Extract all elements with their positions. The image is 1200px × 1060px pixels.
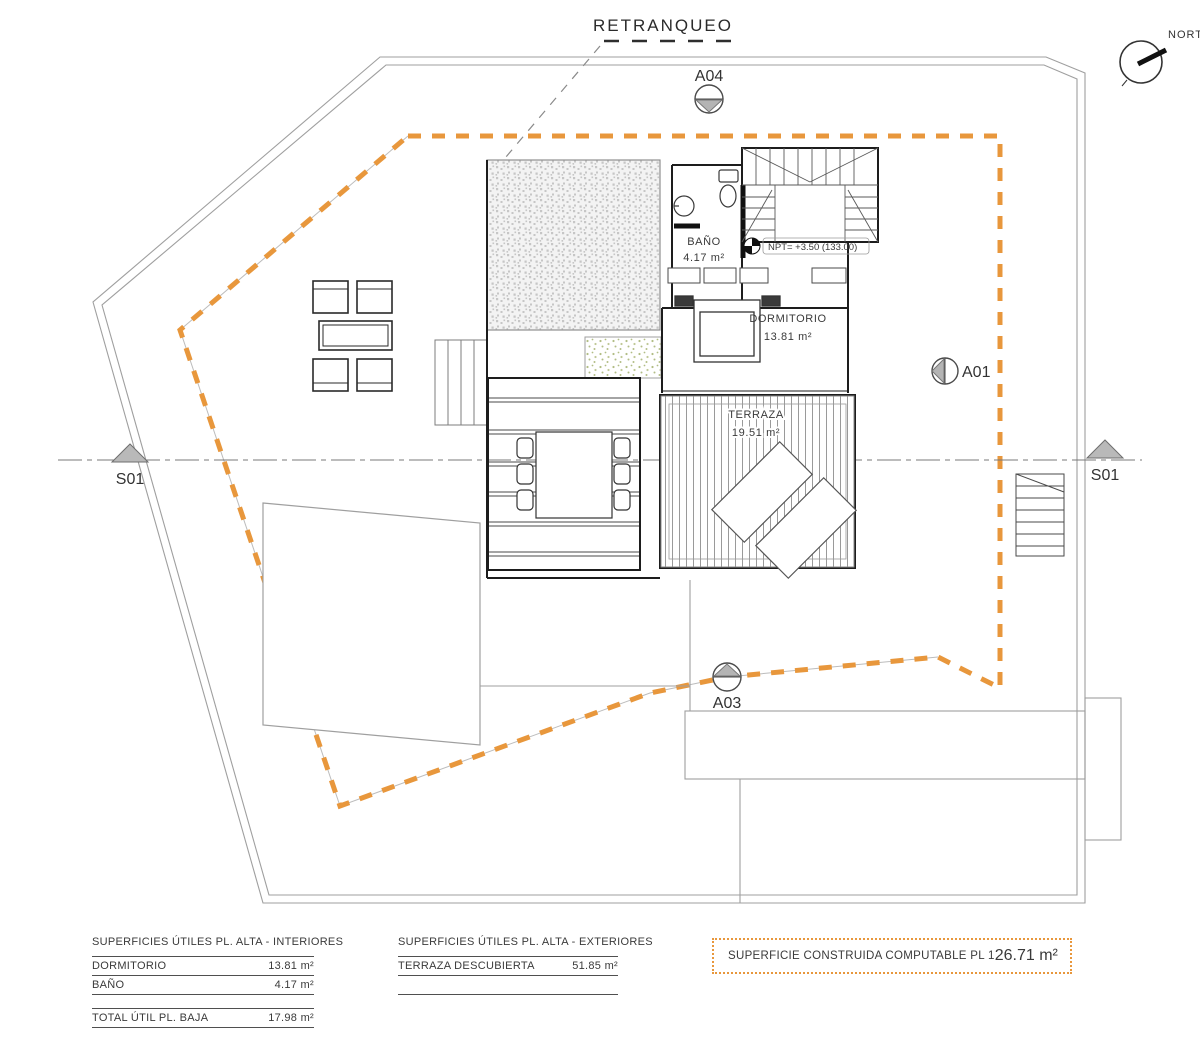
row-value: 13.81 m² <box>268 960 314 972</box>
wardrobes <box>668 268 846 283</box>
total-label: TOTAL ÚTIL PL. BAJA <box>92 1012 208 1024</box>
marker-a01: A01 <box>932 358 991 384</box>
outdoor-furniture <box>313 281 392 391</box>
lower-level-pool-outline <box>263 503 480 745</box>
bathroom-fixtures <box>674 170 738 216</box>
row-label: DORMITORIO <box>92 960 166 972</box>
north-compass: NORTE <box>1120 29 1200 86</box>
table-interiors-title: SUPERFICIES ÚTILES PL. ALTA - INTERIORES <box>92 936 314 956</box>
bano-area: 4.17 m² <box>683 252 725 264</box>
table-exteriors-title: SUPERFICIES ÚTILES PL. ALTA - EXTERIORES <box>398 936 618 956</box>
section-marker-s01-right: S01 <box>1087 440 1123 484</box>
computable-label: SUPERFICIE CONSTRUIDA COMPUTABLE PL 1 <box>728 950 995 962</box>
room-label-dormitorio: DORMITORIO 13.81 m² <box>749 313 826 343</box>
dormitorio-name: DORMITORIO <box>749 313 826 325</box>
section-marker-s01-left: S01 <box>112 444 148 488</box>
lower-level-outlines <box>480 580 1121 903</box>
planter <box>585 337 661 378</box>
a04-label: A04 <box>695 68 724 85</box>
a03-label: A03 <box>713 695 742 712</box>
table-row: TERRAZA DESCUBIERTA 51.85 m² <box>398 956 618 976</box>
toilet-tank <box>719 170 738 182</box>
table-row: BAÑO 4.17 m² <box>92 976 314 995</box>
terraza-name: TERRAZA <box>728 409 784 421</box>
table-empty-row <box>398 976 618 995</box>
level-marker: NPT= +3.50 (133.00) <box>744 238 869 254</box>
table-total-row: TOTAL ÚTIL PL. BAJA 17.98 m² <box>92 1008 314 1028</box>
setback-label: RETRANQUEO <box>593 16 733 35</box>
staircase <box>742 148 878 242</box>
dining-set-below <box>517 432 630 518</box>
s01-left-label: S01 <box>116 471 145 488</box>
exterior-stair <box>1016 474 1064 556</box>
s01-right-label: S01 <box>1091 467 1120 484</box>
total-value: 17.98 m² <box>268 1012 314 1024</box>
marker-a03: A03 <box>713 663 742 712</box>
gravel-roof-area <box>487 160 660 330</box>
table-gap <box>92 995 314 1008</box>
table-row: DORMITORIO 13.81 m² <box>92 956 314 976</box>
row-value: 51.85 m² <box>572 960 618 972</box>
table-exteriors: SUPERFICIES ÚTILES PL. ALTA - EXTERIORES… <box>398 936 618 995</box>
floor-plan-svg: RETRANQUEO S01 S01 <box>0 0 1200 1060</box>
bed <box>675 296 780 362</box>
bano-name: BAÑO <box>687 235 721 248</box>
north-label: NORTE <box>1168 29 1200 41</box>
level-note-label: NPT= +3.50 (133.00) <box>768 242 857 253</box>
marker-a04: A04 <box>695 68 724 113</box>
room-label-bano: BAÑO 4.17 m² <box>683 235 725 264</box>
row-label: TERRAZA DESCUBIERTA <box>398 960 535 972</box>
retranqueo-leader-line <box>489 46 600 177</box>
row-value: 4.17 m² <box>275 979 314 991</box>
a01-label: A01 <box>962 364 991 381</box>
terraza-area: 19.51 m² <box>732 427 780 439</box>
louver-bench <box>435 340 487 425</box>
dormitorio-area: 13.81 m² <box>764 331 812 343</box>
floor-plan-canvas: RETRANQUEO S01 S01 <box>0 0 1200 1060</box>
computable-surface-box: SUPERFICIE CONSTRUIDA COMPUTABLE PL 1 26… <box>712 938 1072 974</box>
computable-value: 26.71 m² <box>995 947 1058 965</box>
toilet-bowl <box>720 185 736 207</box>
row-label: BAÑO <box>92 979 124 991</box>
table-interiors: SUPERFICIES ÚTILES PL. ALTA - INTERIORES… <box>92 936 314 1028</box>
